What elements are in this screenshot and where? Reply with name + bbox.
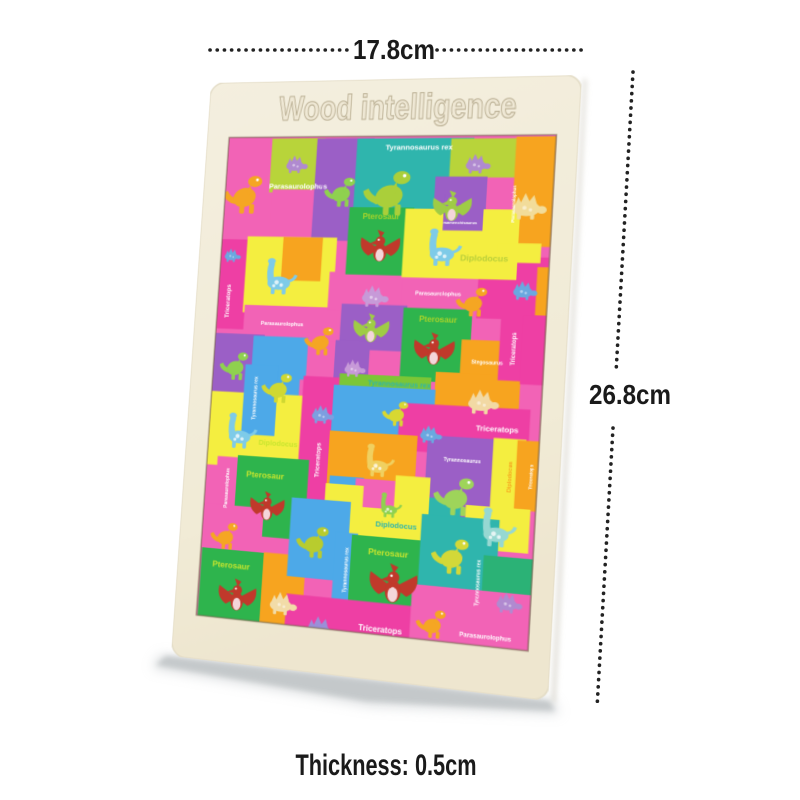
svg-text:17.8cm: 17.8cm — [353, 34, 435, 65]
svg-text:26.8cm: 26.8cm — [589, 379, 671, 410]
svg-text:Thickness: 0.5cm: Thickness: 0.5cm — [296, 749, 477, 782]
